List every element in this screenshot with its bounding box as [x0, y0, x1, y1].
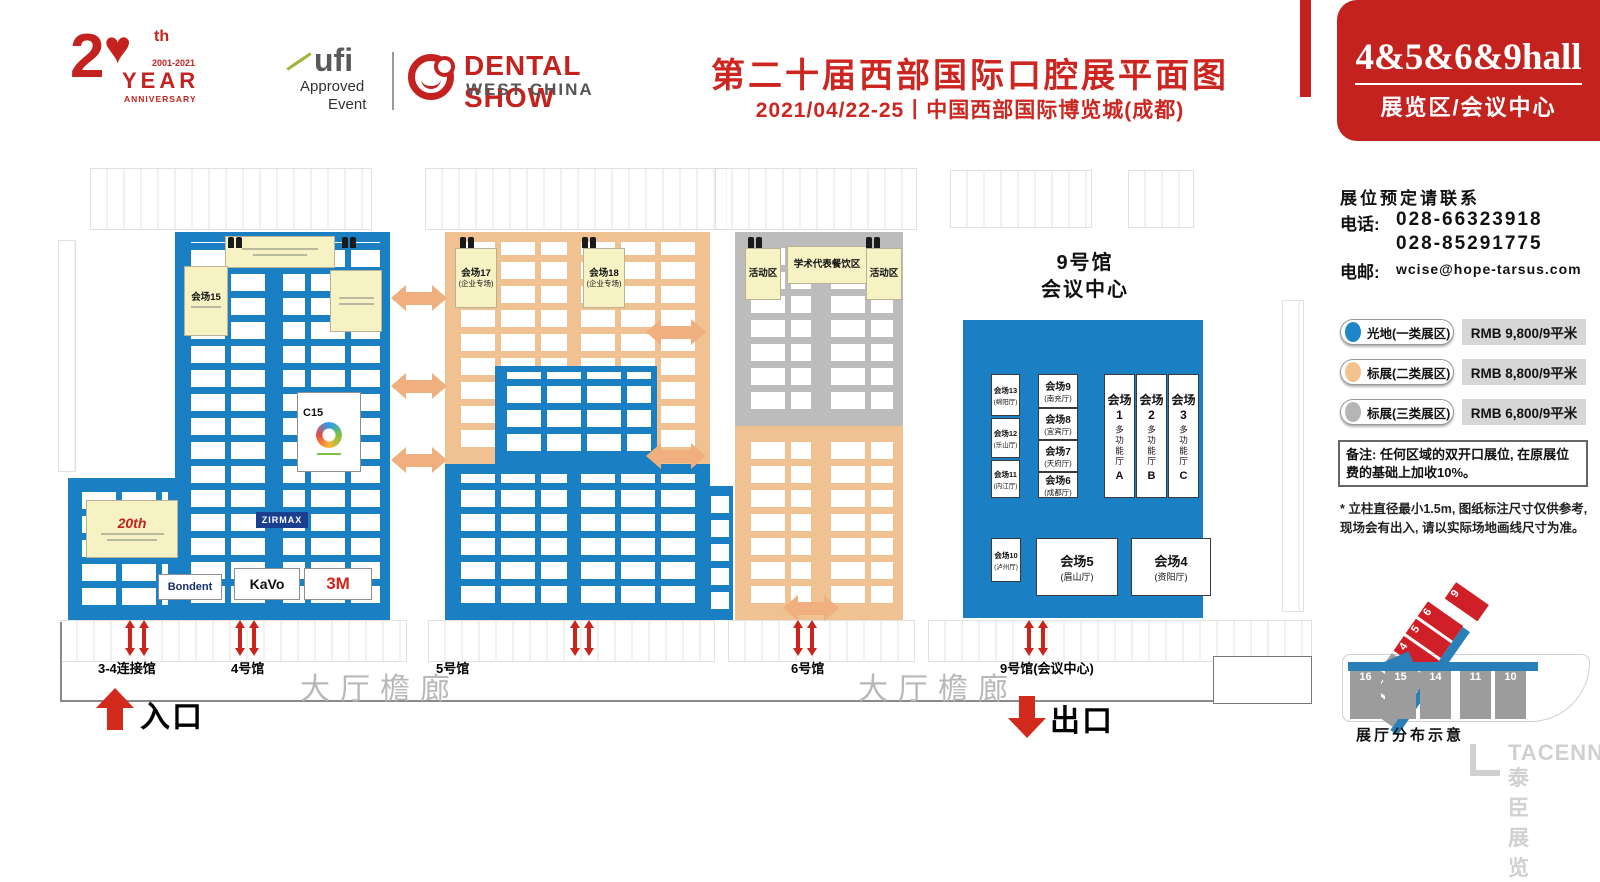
- corridor-left-wall: [60, 622, 62, 700]
- cad-drawing: [950, 170, 1092, 228]
- exit-label: 出口: [1050, 696, 1114, 740]
- restroom-icon: [748, 237, 762, 248]
- door-arrow: [238, 628, 242, 648]
- label-hall-6: 6号馆: [791, 658, 824, 677]
- hall-6-booths: [705, 490, 729, 616]
- door-arrow: [252, 628, 256, 648]
- email-address: wcise@hope-tarsus.com: [1396, 261, 1582, 277]
- room-11: 会场11(内江厅): [991, 460, 1020, 498]
- hall-9-title: 9号馆 会议中心: [965, 250, 1205, 304]
- room-2: 会场2 多功能厅 B: [1136, 374, 1167, 498]
- door-arrow: [1027, 628, 1031, 648]
- minimap-hall-10: 10: [1495, 671, 1526, 719]
- booth-bondent: Bondent: [158, 574, 222, 600]
- hall-5-aisle: [567, 464, 581, 620]
- phone-number-2: 028-85291775: [1396, 233, 1543, 255]
- phone-number-1: 028-66323918: [1396, 209, 1543, 231]
- anniversary-booth: 20th: [86, 500, 178, 558]
- passage-arrow: [661, 326, 691, 339]
- ufi-slash-icon: [298, 52, 311, 62]
- door-arrow: [142, 628, 146, 648]
- hall-4-yellow-area: [330, 270, 382, 332]
- illegible-text: [339, 297, 374, 299]
- anniversary-booth-label: 20th: [118, 515, 147, 531]
- corridor-line: [60, 700, 1310, 702]
- hall-4-room-15: 会场15: [184, 266, 228, 336]
- ufi-name: ufi: [314, 42, 353, 79]
- legend-item-standard-2: 标展(二类展区): [1340, 359, 1454, 385]
- page-subtitle: 2021/04/22-25丨中国西部国际博览城(成都): [660, 94, 1280, 124]
- restroom-icon: [228, 237, 242, 248]
- door-arrow: [128, 628, 132, 648]
- hall-6-activity-right: 活动区: [866, 248, 902, 300]
- watermark-logo-icon: [1470, 744, 1500, 776]
- dental-show-logo: DENTAL SHOW WEST CHINA: [408, 50, 658, 116]
- booth-kavo-label: KaVo: [250, 576, 285, 592]
- area-label: 活动区: [749, 268, 778, 279]
- hall-9-title-line2: 会议中心: [965, 277, 1205, 304]
- label-connector: 3-4连接馆: [98, 658, 156, 677]
- minimap-hall-15: 15: [1385, 671, 1416, 719]
- room-name: 会场17: [461, 268, 491, 279]
- hall-badge-label: 展览区/会议中心: [1337, 90, 1600, 122]
- passage-arrow: [406, 380, 432, 393]
- label-hall-4: 4号馆: [231, 658, 264, 677]
- page-title: 第二十届西部国际口腔展平面图: [660, 48, 1280, 97]
- minimap-hall-11: 11: [1460, 671, 1491, 719]
- exit-arrow-icon: [1008, 694, 1046, 738]
- entrance-label: 入口: [140, 692, 204, 736]
- cad-drawing: [1128, 170, 1194, 228]
- heart-icon: ♥: [104, 24, 131, 70]
- minimap-hall-14: 14: [1420, 671, 1451, 719]
- door-arrow: [573, 628, 577, 648]
- entrance-arrow-icon: [96, 688, 134, 732]
- legend-gray-dot-icon: [1345, 402, 1361, 422]
- room-name: 会场15: [191, 292, 221, 303]
- minimap-hall-9: 9: [1445, 582, 1489, 621]
- smile-face-dot-icon: [434, 56, 455, 77]
- hall-6-activity-left: 活动区: [745, 248, 781, 300]
- minimap-hall-16: 16: [1350, 671, 1381, 719]
- phone-label: 电话:: [1340, 210, 1380, 235]
- room-7: 会场7(天府厅): [1038, 440, 1078, 472]
- room-8: 会场8(宜宾厅): [1038, 408, 1078, 440]
- hall-6-orange: [735, 426, 903, 620]
- illegible-text: [107, 539, 157, 541]
- booth-3m-label: 3M: [326, 574, 350, 594]
- anniversary-text: ANNIVERSARY: [124, 94, 197, 104]
- brand-subtitle: WEST CHINA: [466, 80, 594, 100]
- contact-heading: 展位预定请联系: [1340, 184, 1480, 209]
- illegible-text: [101, 533, 164, 535]
- hall-9-title-line1: 9号馆: [965, 250, 1205, 277]
- c15-logo-icon: [316, 422, 342, 448]
- room-name: 会场18: [589, 268, 619, 279]
- minimap: 1 2 3 4 5 6 9 16 15 14 11 10 展厅分布示意: [1338, 542, 1596, 742]
- passage-arrow: [798, 602, 824, 615]
- illegible-text: [242, 248, 318, 250]
- legend-label: 标展(二类展区): [1367, 363, 1450, 382]
- illegible-text: [339, 303, 374, 305]
- room-12: 会场12(乐山厅): [991, 418, 1020, 458]
- legend-blue-dot-icon: [1345, 322, 1361, 342]
- hall-6-dining-area: 学术代表餐饮区: [787, 246, 867, 284]
- hall-9-forecourt: [1213, 656, 1312, 704]
- booth-3m: 3M: [304, 568, 372, 600]
- door-arrow: [796, 628, 800, 648]
- illegible-text: [317, 453, 342, 455]
- room-1: 会场1 多功能厅 A: [1104, 374, 1135, 498]
- booth-c15: C15: [297, 392, 361, 472]
- room-5: 会场5(眉山厅): [1036, 538, 1118, 596]
- hall-badge-number: 4&5&6&9hall: [1337, 36, 1600, 79]
- restroom-icon: [582, 237, 596, 248]
- hall-5-room-17: 会场17 (企业专场): [455, 248, 497, 308]
- legend-note: 备注: 任何区域的双开口展位, 在原展位费的基础上加收10%。: [1338, 440, 1588, 487]
- legend-label: 光地(一类展区): [1367, 323, 1450, 342]
- legend-price: RMB 9,800/9平米: [1462, 319, 1586, 345]
- passage-arrow: [406, 454, 432, 467]
- room-4: 会场4(资阳厅): [1131, 538, 1211, 596]
- cad-drawing: [715, 168, 917, 230]
- footnote: * 立柱直径最小1.5m, 图纸标注尺寸仅供参考, 现场会有出入, 请以实际场地…: [1340, 500, 1596, 538]
- illegible-text: [191, 306, 220, 308]
- footnote-line2: 现场会有出入, 请以实际场地画线尺寸为准。: [1340, 519, 1596, 538]
- cad-drawing: [425, 168, 727, 230]
- illegible-text: [253, 254, 307, 256]
- ufi-approved: Approved: [300, 78, 364, 95]
- anniversary-number: 2: [70, 26, 104, 88]
- hall-5-booths: [501, 372, 651, 458]
- email-label: 电邮:: [1340, 258, 1380, 283]
- watermark-cjk: 泰臣展览: [1508, 762, 1531, 882]
- door-arrow: [1041, 628, 1045, 648]
- red-accent-strip: [1300, 0, 1311, 97]
- cad-drawing: [90, 168, 372, 230]
- logo-divider: [392, 52, 394, 110]
- room-3: 会场3 多功能厅 C: [1168, 374, 1199, 498]
- room-6: 会场6(成都厅): [1038, 472, 1078, 498]
- area-label: 学术代表餐饮区: [794, 259, 861, 270]
- footnote-line1: * 立柱直径最小1.5m, 图纸标注尺寸仅供参考,: [1340, 500, 1596, 519]
- booth-zirmax-label: ZIRMAX: [262, 515, 303, 525]
- passage-arrow: [406, 292, 432, 305]
- passage-arrow: [661, 450, 691, 463]
- hall-6-aisle: [811, 426, 825, 620]
- door-arrow: [587, 628, 591, 648]
- hall-badge: 4&5&6&9hall 展览区/会议中心: [1337, 0, 1600, 141]
- legend-orange-dot-icon: [1345, 362, 1361, 382]
- restroom-icon: [460, 237, 474, 248]
- anniversary-years: 2001-2021: [152, 58, 195, 68]
- hall-6-blue-strip: [701, 486, 733, 620]
- restroom-icon: [866, 237, 880, 248]
- booth-bondent-label: Bondent: [168, 581, 213, 593]
- cad-drawing: [728, 620, 915, 662]
- anniversary-logo: 2 ♥ th 2001-2021 YEAR ANNIVERSARY: [70, 26, 230, 121]
- hall-5-room-18: 会场18 (企业专场): [583, 248, 625, 308]
- legend-item-open-space: 光地(一类展区): [1340, 319, 1454, 345]
- minimap-blue-band: [1348, 662, 1538, 671]
- corridor-label-left: 大厅檐廊: [300, 664, 460, 708]
- legend-price: RMB 6,800/9平米: [1462, 399, 1586, 425]
- anniversary-year-text: YEAR: [122, 68, 199, 94]
- cad-drawing: [1282, 300, 1304, 612]
- legend-label: 标展(三类展区): [1367, 403, 1450, 422]
- room-sub: (企业专场): [459, 279, 494, 288]
- area-label: 活动区: [870, 268, 899, 279]
- room-sub: (企业专场): [587, 279, 622, 288]
- ufi-event: Event: [328, 96, 366, 113]
- anniversary-suffix: th: [154, 28, 169, 46]
- restroom-icon: [342, 237, 356, 248]
- room-10: 会场10(泸州厅): [991, 538, 1021, 582]
- corridor-label-right: 大厅檐廊: [858, 664, 1018, 708]
- cad-drawing: [60, 620, 407, 662]
- room-13: 会场13(绵阳厅): [991, 374, 1020, 416]
- legend-price: RMB 8,800/9平米: [1462, 359, 1586, 385]
- booth-c15-label: C15: [298, 407, 323, 419]
- hall-badge-rule: [1355, 83, 1581, 85]
- room-9: 会场9(南充厅): [1038, 374, 1078, 408]
- hall-4-aisle: [269, 232, 283, 620]
- booth-kavo: KaVo: [234, 568, 300, 600]
- door-arrow: [810, 628, 814, 648]
- cad-drawing: [58, 240, 76, 472]
- hall-5-blue: [445, 464, 710, 620]
- minimap-caption: 展厅分布示意: [1356, 724, 1464, 745]
- legend-item-standard-3: 标展(三类展区): [1340, 399, 1454, 425]
- hall-5-blue-inset: [495, 366, 657, 464]
- ufi-logo: ufi Approved Event: [286, 50, 386, 116]
- booth-zirmax: ZIRMAX: [256, 512, 308, 528]
